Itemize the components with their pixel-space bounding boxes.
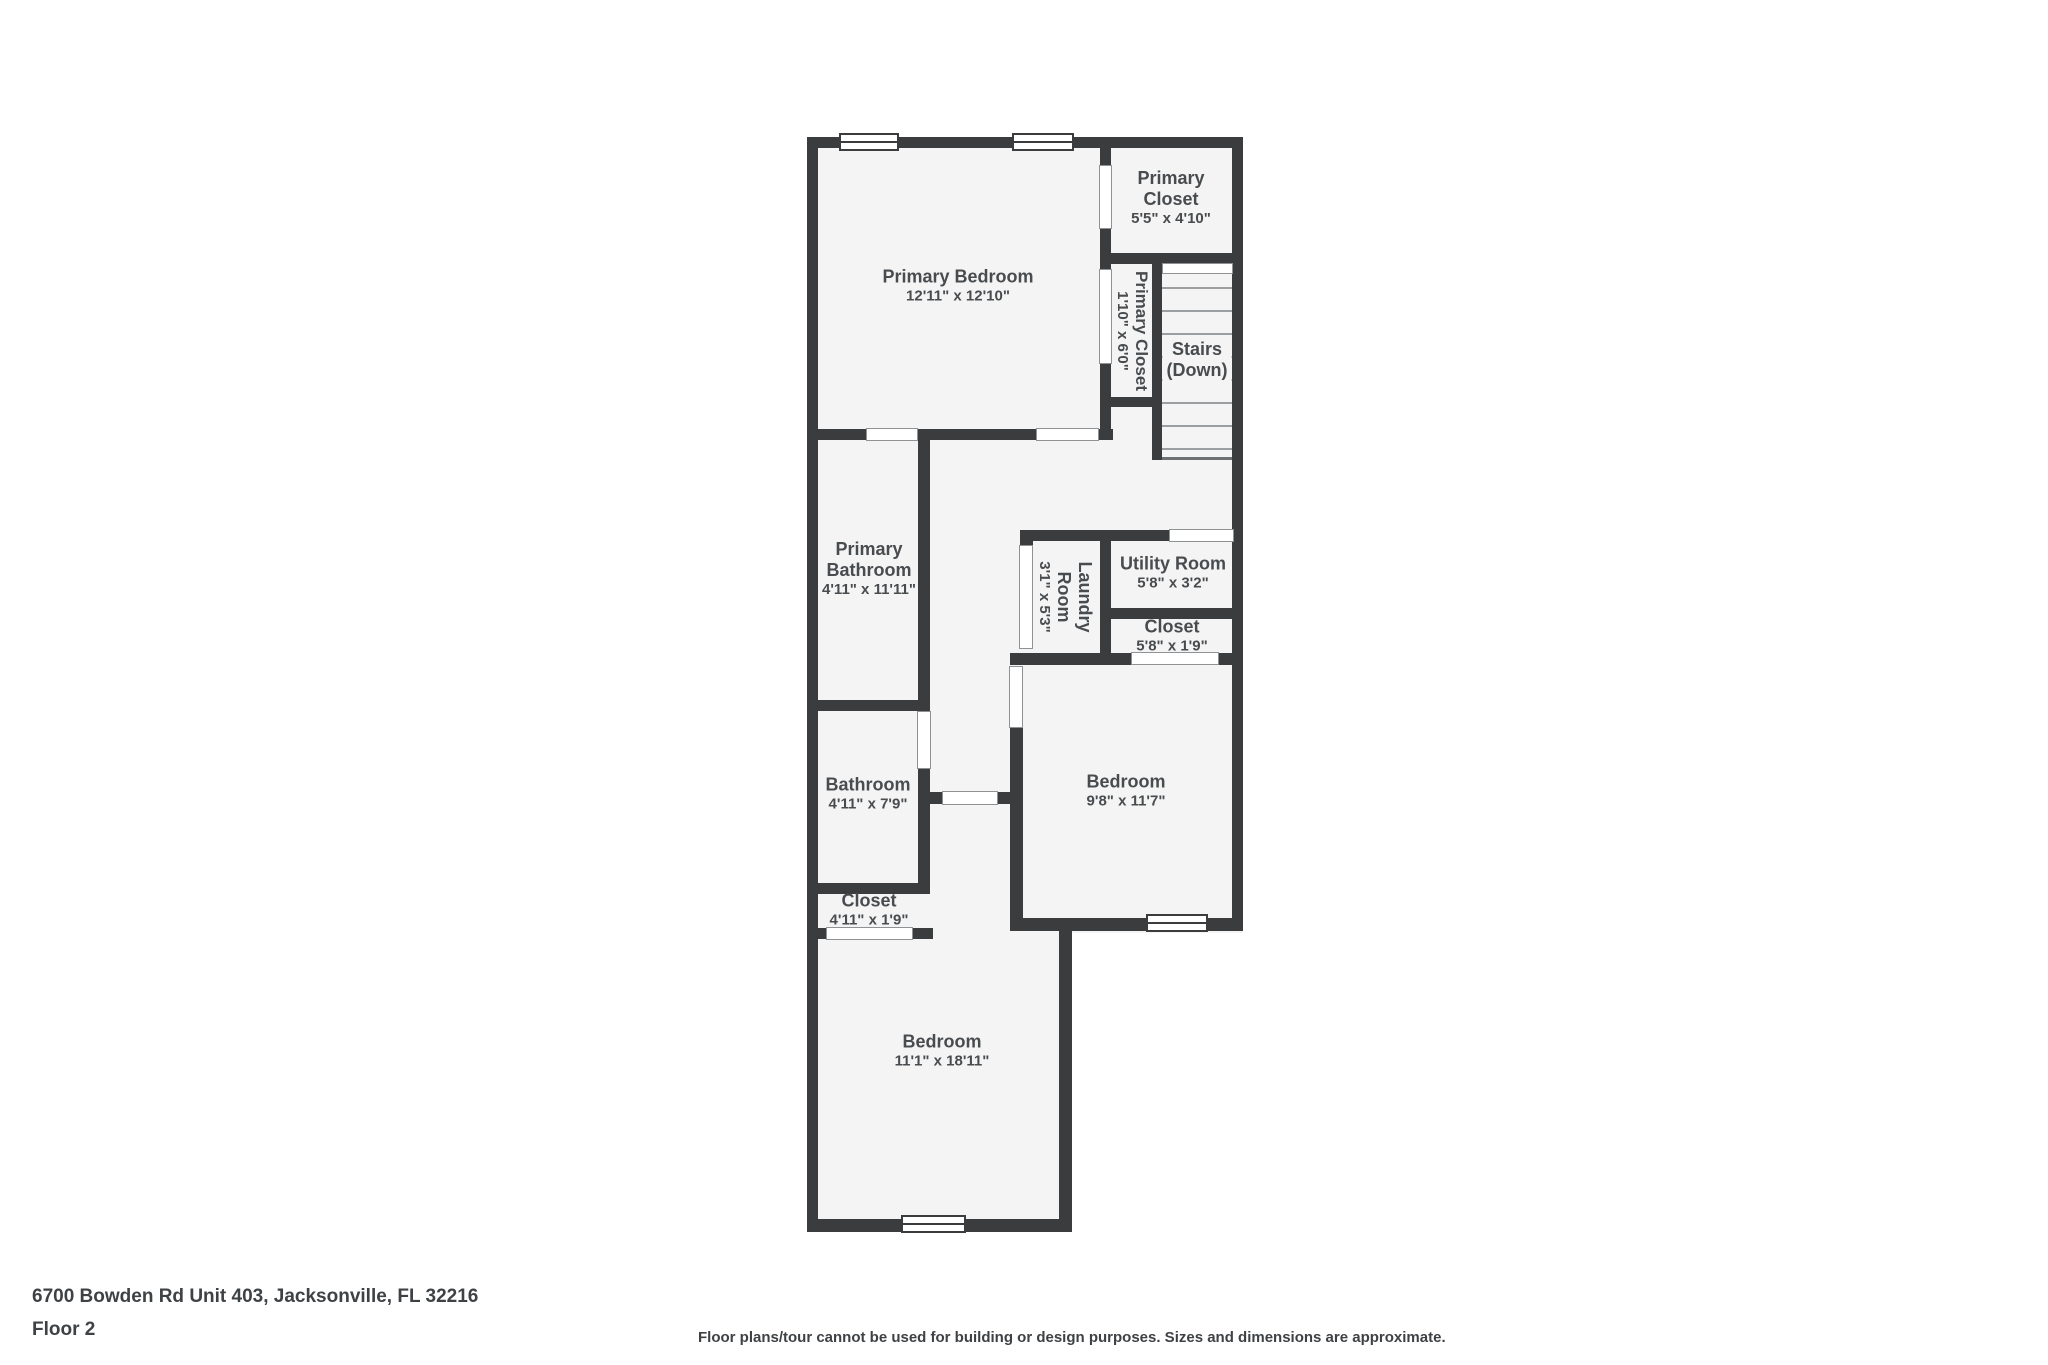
- disclaimer-text: Floor plans/tour cannot be used for buil…: [698, 1329, 1446, 1346]
- floor-label: Floor 2: [32, 1319, 95, 1341]
- window: [1146, 914, 1208, 932]
- room-label-primary-bathroom: Primary Bathroom 4'11" x 11'11": [804, 539, 934, 599]
- wall-primary-bathroom-bottom: [807, 700, 930, 711]
- room-label-laundry-room: Laundry Room 3'1" x 5'3": [1035, 552, 1095, 642]
- wall-bedroom-bottom: [1010, 918, 1243, 931]
- stairs-bottom-edge: [1162, 457, 1232, 460]
- door-laundry-room: [1019, 545, 1033, 649]
- wall-laundry-right: [1100, 530, 1111, 665]
- door-big-bedroom: [942, 791, 998, 805]
- room-label-primary-closet: Primary Closet 5'5" x 4'10": [1111, 168, 1231, 228]
- window: [1012, 133, 1074, 151]
- stair-tread: [1162, 287, 1232, 289]
- stair-tread: [1162, 425, 1232, 427]
- wall-bedroom-left: [1010, 727, 1023, 931]
- wall-primary-bedroom-bottom: [1098, 429, 1113, 440]
- room-label-primary-bedroom: Primary Bedroom 12'11" x 12'10": [882, 267, 1033, 306]
- floor-plan-page: Primary Bedroom 12'11" x 12'10" Primary …: [0, 0, 2048, 1365]
- wall-segment: [918, 792, 943, 804]
- wall-segment: [912, 928, 933, 939]
- wall-left: [807, 137, 818, 1232]
- wall-bedroom-right: [1059, 918, 1072, 1232]
- room-label-closet-lower: Closet 4'11" x 1'9": [830, 891, 909, 930]
- room-label-bathroom: Bathroom 4'11" x 7'9": [826, 775, 911, 814]
- wall-laundry-top: [1025, 530, 1170, 541]
- wall-segment: [807, 928, 827, 939]
- floor-area-lower: [807, 933, 1072, 1232]
- stairs-label: Stairs (Down): [1163, 338, 1232, 382]
- window: [839, 133, 899, 151]
- door-narrow-closet: [1099, 269, 1112, 364]
- wall-bathroom-right: [918, 768, 930, 894]
- wall-closet-bottom: [1218, 653, 1243, 665]
- door-bedroom: [1009, 666, 1023, 728]
- wall-segment: [1020, 530, 1033, 546]
- wall-closet-bottom: [1010, 653, 1132, 665]
- room-label-closet-upper: Closet 5'8" x 1'9": [1136, 617, 1207, 656]
- wall-primary-bedroom-bottom: [917, 429, 1037, 440]
- room-label-utility-room: Utility Room 5'8" x 3'2": [1120, 554, 1226, 593]
- door-stairs: [1162, 263, 1233, 274]
- room-label-big-bedroom: Bedroom 11'1" x 18'11": [895, 1032, 990, 1071]
- door-primary-bathroom: [866, 428, 918, 441]
- room-label-primary-closet-narrow: Primary Closet 1'10" x 6'0": [1113, 271, 1151, 391]
- wall-segment: [1100, 148, 1111, 166]
- window: [901, 1215, 966, 1233]
- room-label-bedroom: Bedroom 9'8" x 11'7": [1086, 772, 1165, 811]
- stair-tread: [1162, 310, 1232, 312]
- address-text: 6700 Bowden Rd Unit 403, Jacksonville, F…: [32, 1286, 478, 1308]
- wall-segment: [1100, 363, 1111, 429]
- wall-segment: [1111, 397, 1162, 407]
- stair-tread: [1162, 448, 1232, 450]
- door-bathroom: [917, 711, 931, 769]
- door-utility-room: [1169, 529, 1234, 542]
- door-primary-bedroom: [1036, 428, 1099, 441]
- wall-stairs-left: [1152, 263, 1162, 460]
- stair-tread: [1162, 402, 1232, 404]
- stair-tread: [1162, 333, 1232, 335]
- wall-primary-bedroom-bottom: [807, 429, 867, 440]
